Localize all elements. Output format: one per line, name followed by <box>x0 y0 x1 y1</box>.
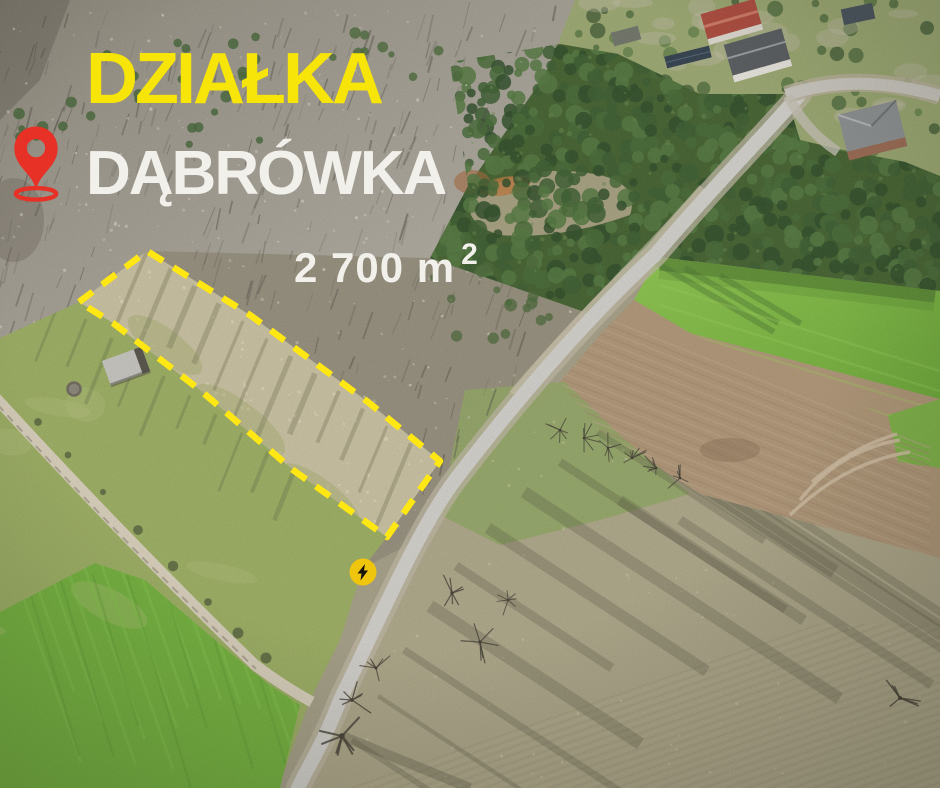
land-listing-poster: DZIAŁKA DĄBRÓWKA 2 700 m2 <box>0 0 940 788</box>
poster-location-name: DĄBRÓWKA <box>86 143 445 205</box>
poster-title: DZIAŁKA <box>86 43 381 115</box>
location-pin-icon <box>11 123 61 205</box>
area-exponent: 2 <box>461 238 478 271</box>
poster-area-label: 2 700 m2 <box>294 247 478 289</box>
area-value: 2 700 m <box>294 244 455 291</box>
lightning-marker-icon <box>350 559 377 586</box>
